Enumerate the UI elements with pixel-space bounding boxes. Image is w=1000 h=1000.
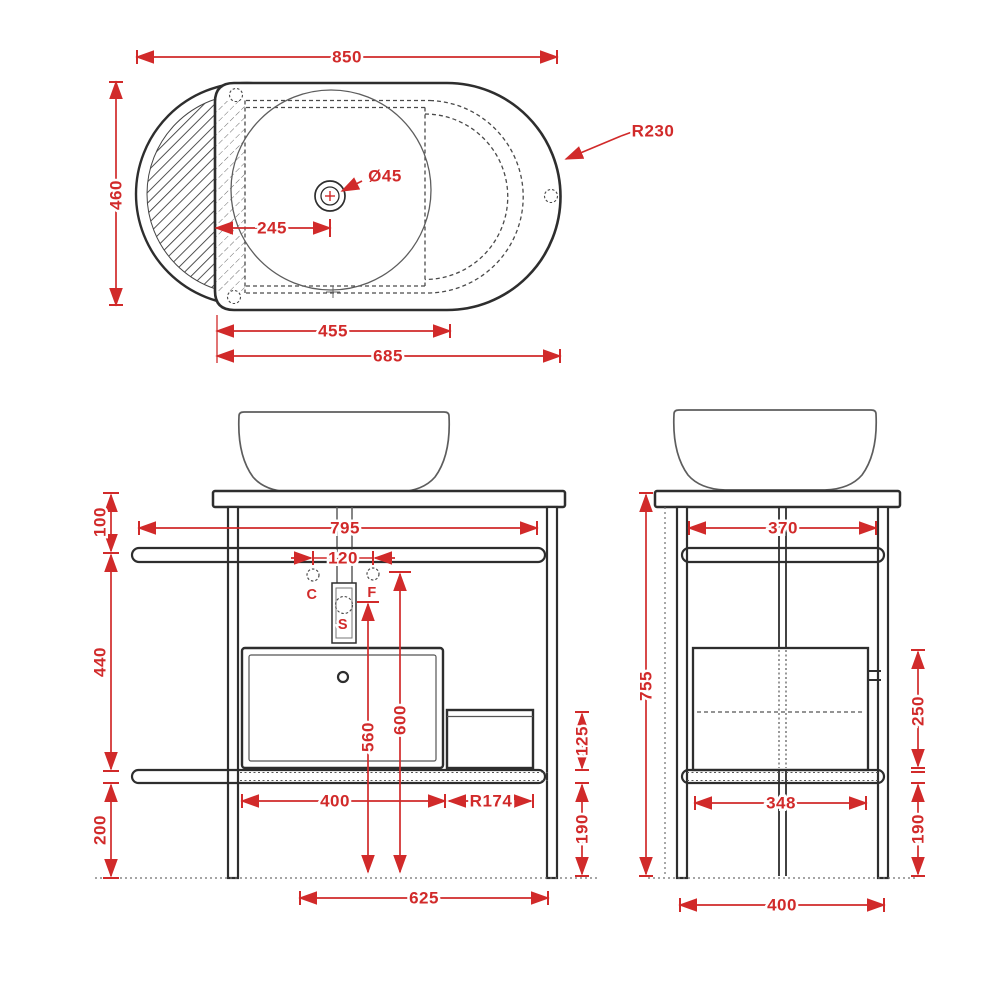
dim-label: 400: [320, 792, 350, 811]
countertop-outline: [215, 83, 561, 310]
tap-hole-hot: [367, 568, 379, 580]
dim-label: 625: [409, 889, 439, 908]
dim-label: 400: [767, 896, 797, 915]
dim-label: 560: [359, 722, 378, 752]
dim-label: 600: [391, 705, 410, 735]
dim-overall-width: 850: [137, 48, 557, 67]
dim-waste-height: 560: [357, 602, 379, 872]
dim-rail-to-rail: 440: [91, 555, 120, 783]
towel-rail-upper-side: [682, 548, 884, 562]
label-waste: S: [338, 617, 348, 633]
dim-label: 440: [91, 647, 110, 677]
dim-label: 245: [257, 219, 287, 238]
dim-total-height: 755: [637, 493, 656, 876]
dim-drawer-width: 400: [242, 792, 445, 811]
dim-deck-width: 685: [217, 347, 560, 366]
dim-console-width: 795: [139, 519, 537, 538]
dim-rail-to-floor-right: 190: [573, 783, 592, 876]
dim-label: 755: [637, 671, 656, 701]
tap-holes: [307, 568, 379, 581]
dim-label: 120: [328, 549, 358, 568]
dim-shelf-radius: R174: [449, 792, 533, 811]
dim-drawer-depth: 348: [695, 794, 866, 813]
drawer-front: [242, 648, 443, 768]
leg-front-right: [547, 507, 557, 878]
front-view: 795 100 440 200 120 C F S: [91, 412, 598, 908]
leg-side-front: [677, 507, 687, 878]
siphon-box: [332, 583, 356, 643]
dim-leg-spacing: 625: [300, 889, 548, 908]
dim-label: 795: [330, 519, 360, 538]
technical-drawing-page: 850 460 245 Ø45 R230 455: [0, 0, 1000, 1000]
vessel-basin-side: [674, 410, 876, 490]
glass-shelf-edges: [240, 773, 549, 781]
tap-hole-cold: [307, 569, 319, 581]
dim-label: 685: [373, 347, 403, 366]
dim-label: 125: [573, 726, 592, 756]
drawer-knob: [338, 672, 348, 682]
vanity-dimension-drawing: 850 460 245 Ø45 R230 455: [0, 0, 1000, 1000]
dim-label: 250: [909, 696, 928, 726]
vessel-basin-front: [239, 412, 449, 492]
dim-label: 200: [91, 815, 110, 845]
drawer-side: [693, 648, 868, 770]
dim-side-shelf-height: 125: [573, 712, 592, 770]
dim-label: 455: [318, 322, 348, 341]
label-hot: F: [367, 585, 376, 601]
dim-rail-to-floor-left: 200: [91, 785, 120, 878]
dim-top-to-rail: 100: [91, 493, 120, 553]
dim-drawer-height: 250: [909, 650, 928, 783]
glass-shelf-edges-side: [687, 773, 879, 781]
dim-label: 100: [91, 507, 110, 537]
dim-tap-spacing: 120: [291, 549, 395, 568]
dim-overall-depth: 460: [107, 82, 126, 305]
counter-basin-overlap-hatch: [217, 101, 245, 292]
dim-label: 850: [332, 48, 362, 67]
dim-underside-height: 600: [389, 572, 411, 872]
dim-label: Ø45: [368, 167, 402, 186]
dim-end-radius: R230: [566, 122, 674, 160]
dim-label: 190: [909, 814, 928, 844]
side-shelf-box: [447, 710, 533, 768]
dim-label: R230: [632, 122, 675, 141]
dim-label: 370: [768, 519, 798, 538]
countertop-front: [213, 491, 565, 507]
dim-inner-depth: 370: [689, 519, 876, 538]
dim-overall-depth-side: 400: [680, 896, 884, 915]
label-cold: C: [307, 587, 318, 603]
dim-rail-to-floor-side: 190: [909, 785, 928, 876]
dim-label: R174: [470, 792, 513, 811]
top-view: 850 460 245 Ø45 R230 455: [107, 48, 675, 366]
side-view: 370 755 250 190 348: [637, 410, 928, 915]
dim-label: 348: [766, 794, 796, 813]
countertop-side: [655, 491, 900, 507]
dim-label: 190: [573, 814, 592, 844]
dim-label: 460: [107, 180, 126, 210]
